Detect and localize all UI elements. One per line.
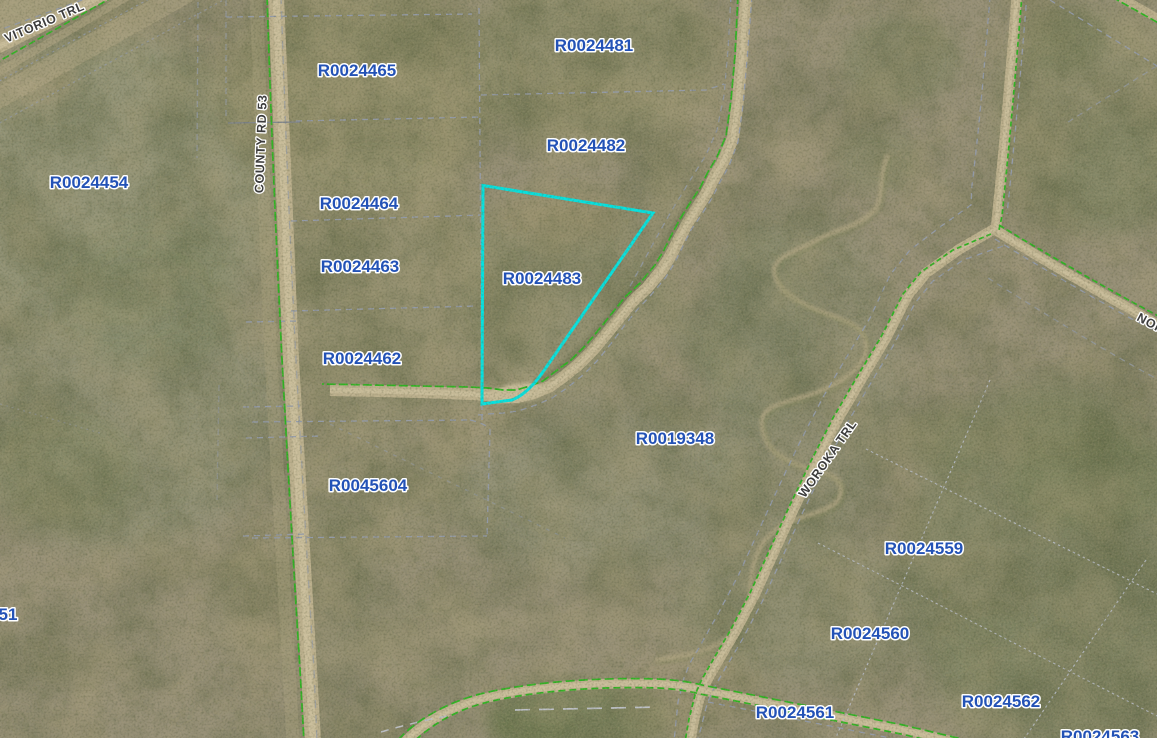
svg-text:R0024561: R0024561 (756, 703, 834, 722)
svg-text:R0024559: R0024559 (885, 539, 963, 558)
svg-text:51: 51 (0, 605, 17, 624)
svg-text:R0024454: R0024454 (50, 173, 129, 192)
svg-text:R0024563: R0024563 (1061, 727, 1139, 738)
svg-text:R0024465: R0024465 (318, 61, 396, 80)
svg-text:R0024464: R0024464 (320, 194, 399, 213)
svg-text:R0024463: R0024463 (321, 257, 399, 276)
svg-text:R0024462: R0024462 (323, 349, 401, 368)
svg-text:R0019348: R0019348 (636, 429, 714, 448)
svg-text:R0024482: R0024482 (547, 136, 625, 155)
svg-text:R0024562: R0024562 (962, 692, 1040, 711)
svg-text:R0045604: R0045604 (329, 476, 408, 495)
svg-text:R0024560: R0024560 (831, 624, 909, 643)
svg-text:R0024483: R0024483 (503, 269, 581, 288)
svg-text:R0024481: R0024481 (555, 36, 633, 55)
